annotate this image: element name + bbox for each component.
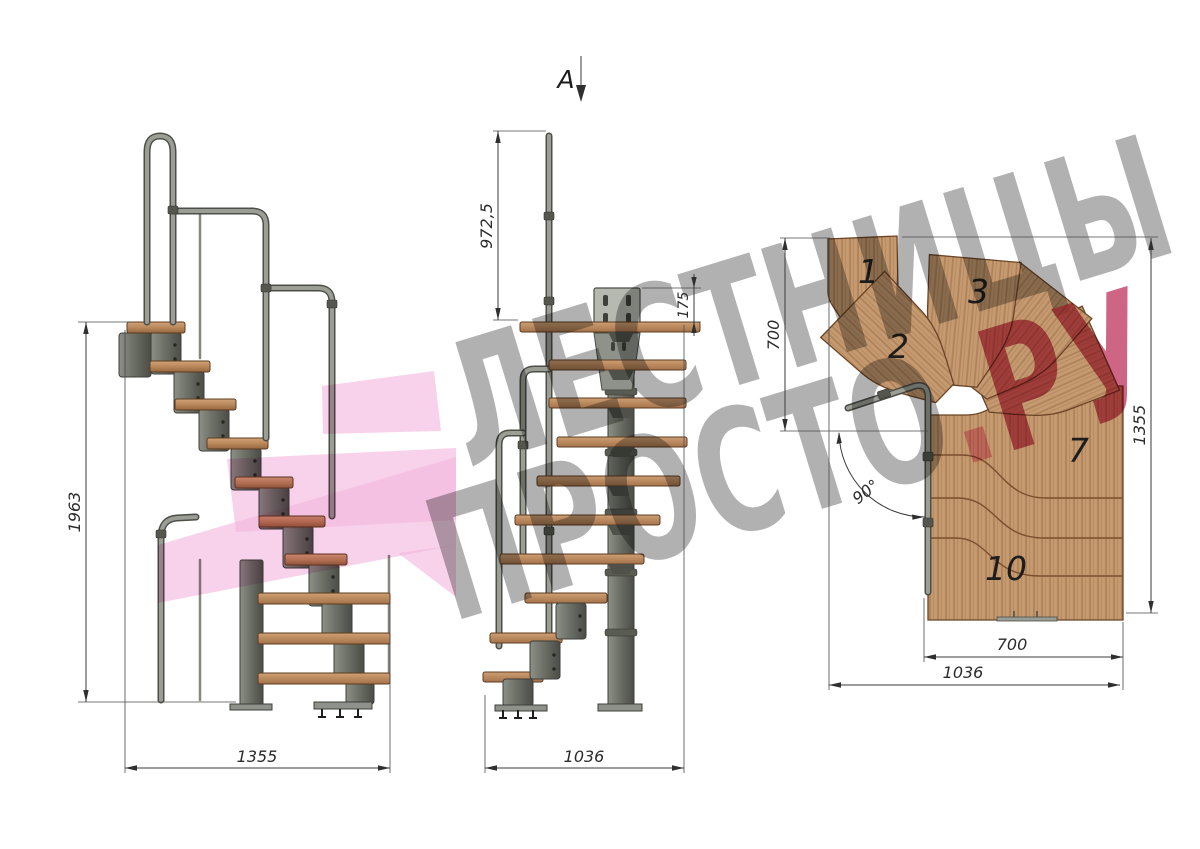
front-rail-height-dimension: 972,5 bbox=[477, 203, 496, 249]
side-height-dimension: 1963 bbox=[65, 492, 84, 533]
plan-left-height-dimension: 700 bbox=[764, 320, 783, 351]
front-plate-offset-dimension: 175 bbox=[676, 292, 692, 319]
staircase-drawing: 1 2 3 7 10 ЛЕСТНИЦЫ ПРОСТО.РУ bbox=[0, 0, 1200, 849]
section-arrow-icon bbox=[576, 85, 586, 102]
plan-tread-number-10: 10 bbox=[985, 549, 1027, 588]
base-plate bbox=[230, 704, 272, 710]
plan-inner-width-dimension: 700 bbox=[997, 635, 1028, 654]
base-plate bbox=[314, 702, 372, 709]
base-plate bbox=[598, 704, 642, 711]
anchor-bolts bbox=[318, 709, 362, 717]
plan-right-height-dimension: 1355 bbox=[1130, 405, 1149, 446]
section-marker: A bbox=[555, 56, 586, 102]
plan-outer-width-dimension: 1036 bbox=[943, 663, 984, 682]
section-marker-label: A bbox=[555, 65, 574, 94]
staircase-drawing-page: 1 2 3 7 10 ЛЕСТНИЦЫ ПРОСТО.РУ bbox=[0, 0, 1200, 849]
front-width-dimension: 1036 bbox=[564, 747, 605, 766]
side-width-dimension: 1355 bbox=[237, 747, 278, 766]
